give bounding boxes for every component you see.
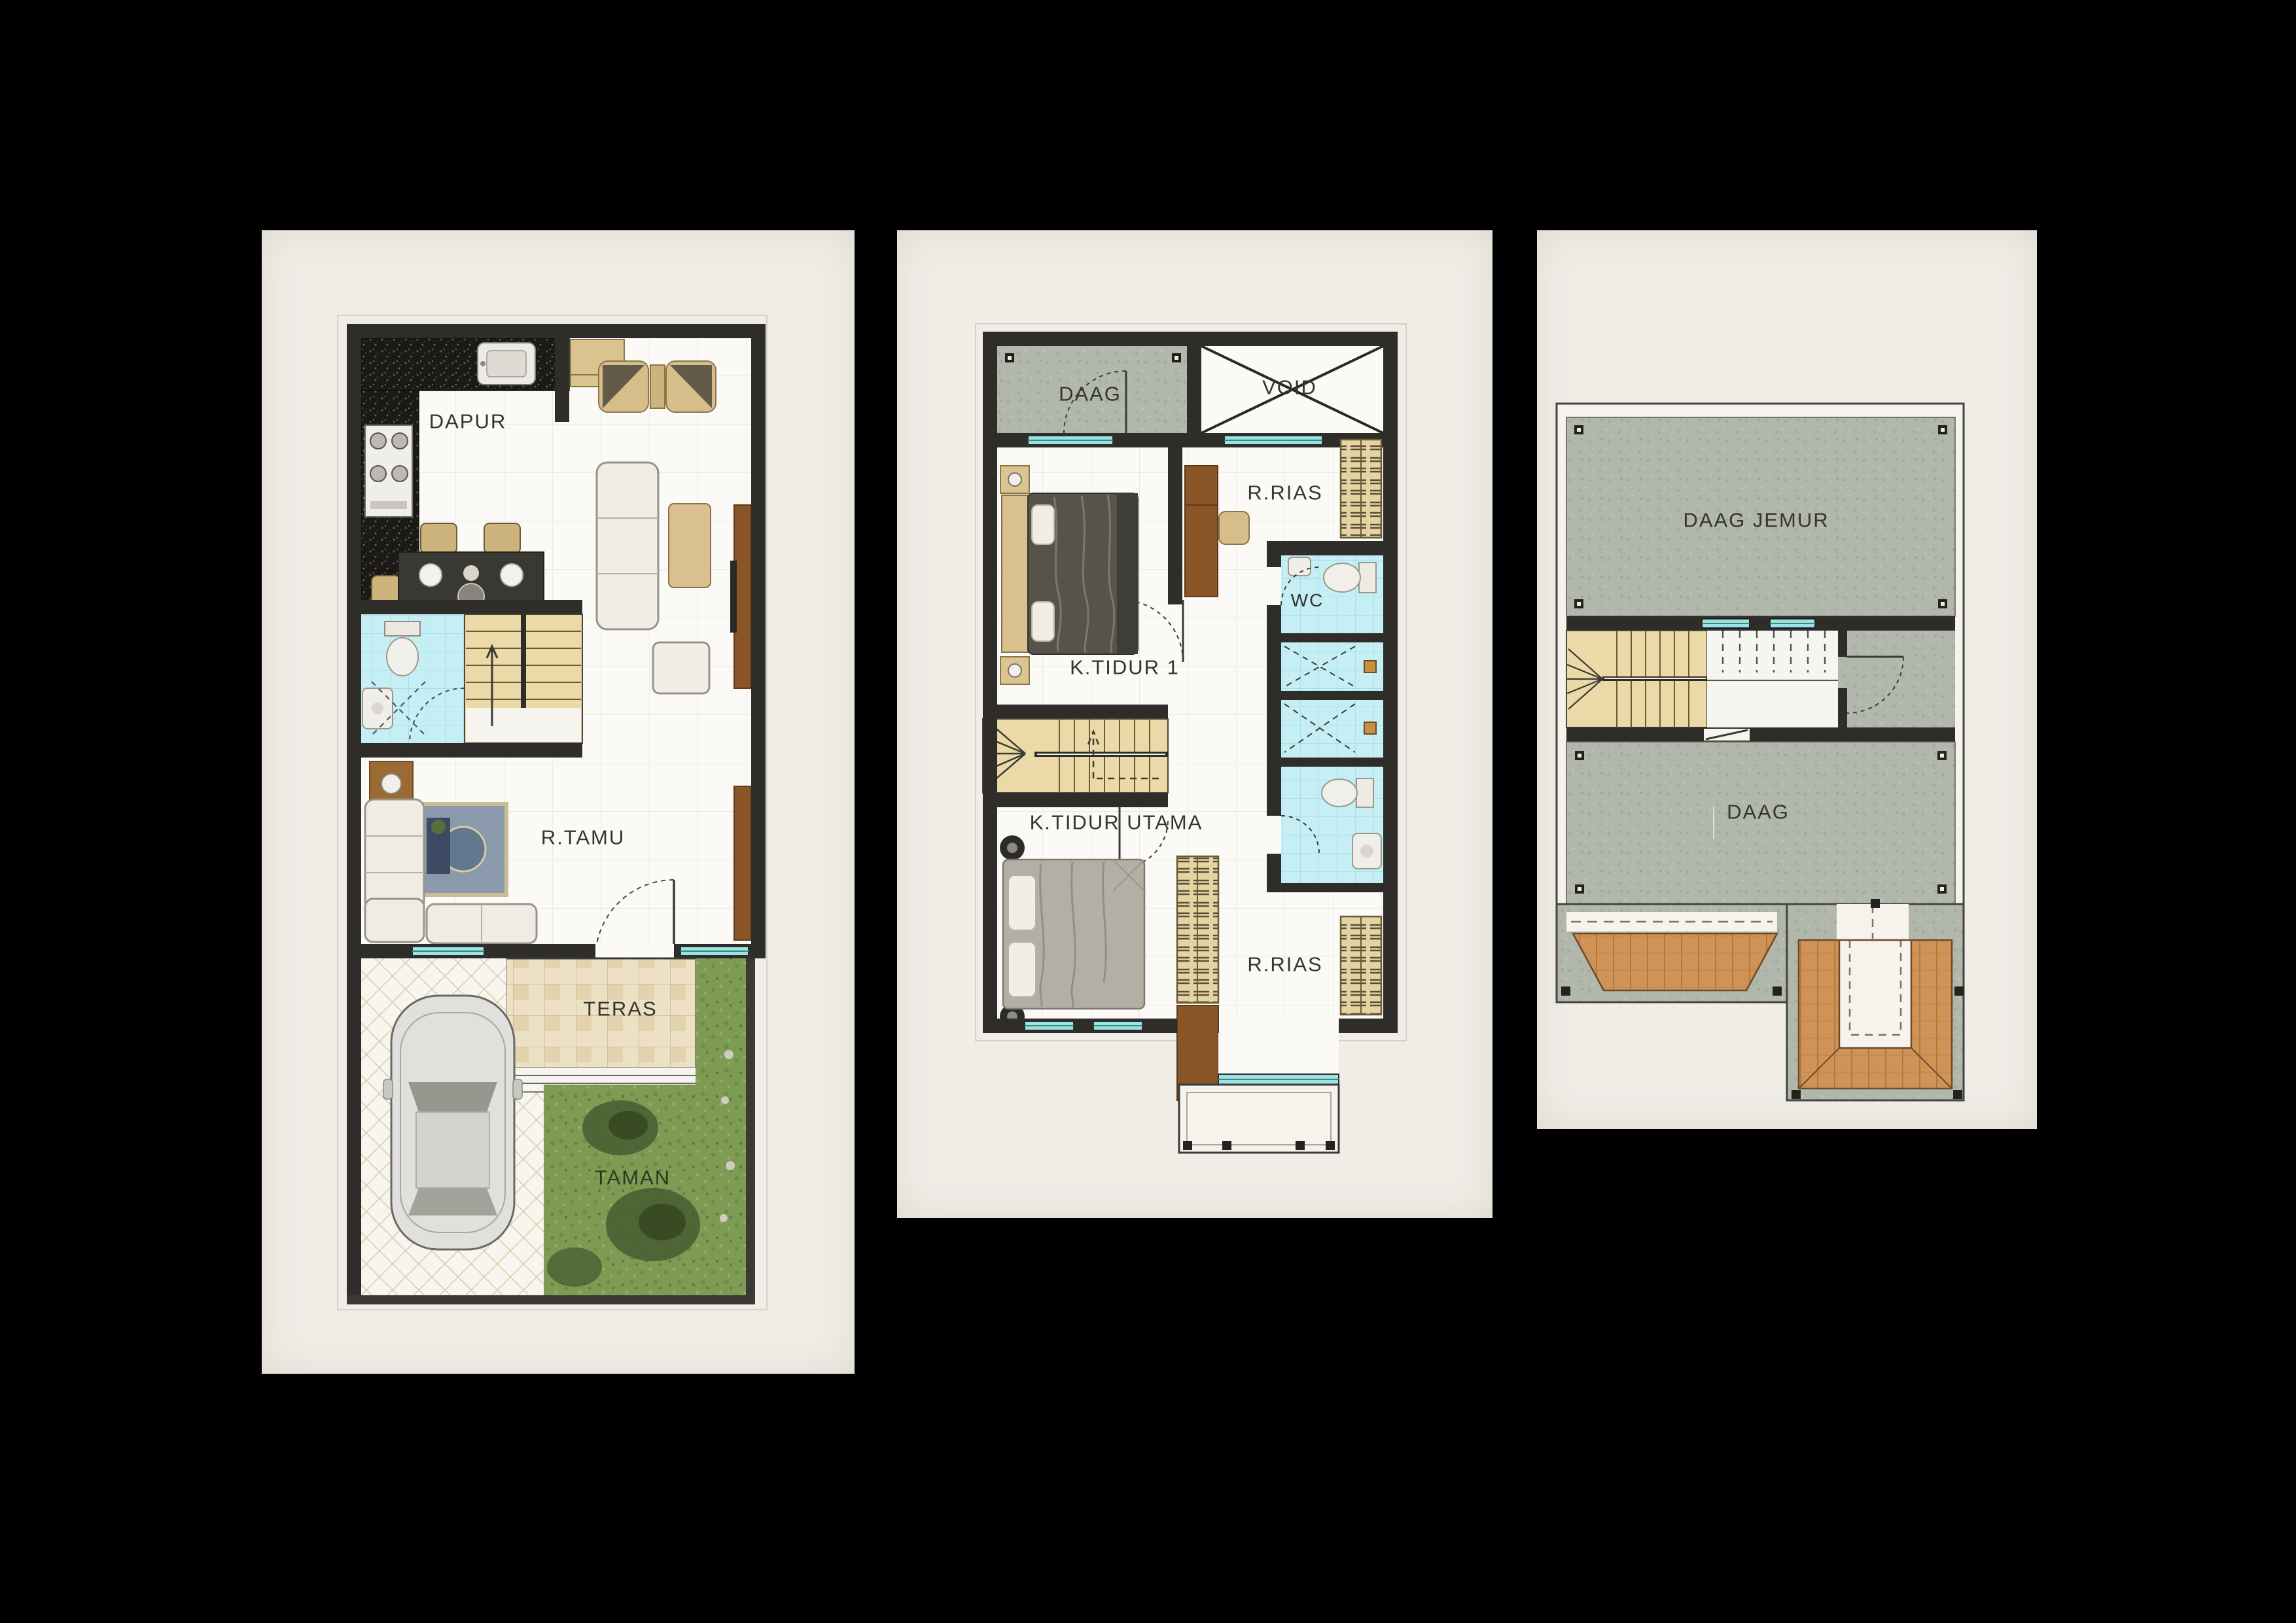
room-label-k-tidur-utama: K.TIDUR UTAMA <box>1030 812 1203 833</box>
roof-deck-left-wing <box>1557 904 1787 1002</box>
headboard <box>1002 495 1028 652</box>
panel-roof-plan: DAAG JEMUR DAAG <box>1537 230 2037 1129</box>
bath-column <box>1267 541 1383 892</box>
room-label-taman: TAMAN <box>595 1168 671 1188</box>
room-label-daag-jemur: DAAG JEMUR <box>1683 510 1829 531</box>
room-label-r-tamu: R.TAMU <box>541 828 626 848</box>
room-label-wc: WC <box>1291 591 1324 610</box>
room-label-daag-2f: DAAG <box>1059 384 1122 404</box>
stair-landing-roof <box>1707 631 1838 727</box>
master-bedroom <box>1000 835 1144 1029</box>
rear-window <box>408 1188 497 1215</box>
bath2-toilet <box>1322 779 1357 807</box>
console-cabinet <box>734 786 751 940</box>
wall-stairs-bottom <box>983 793 1168 807</box>
sofa-long <box>365 799 424 911</box>
room-label-r-rias-2: R.RIAS <box>1247 954 1322 975</box>
room-label-daag-roof: DAAG <box>1727 802 1790 822</box>
wall-bedroom1-bottom <box>983 705 1168 719</box>
ottoman <box>653 642 709 693</box>
wall-bedroom1-rias <box>1168 447 1182 604</box>
room-label-dapur: DAPUR <box>429 411 507 432</box>
bathroom <box>361 614 465 743</box>
stair-landing <box>466 708 581 742</box>
room-label-teras: TERAS <box>583 999 657 1019</box>
wall-daag-void <box>1187 332 1201 433</box>
coffee-table <box>669 504 711 587</box>
wall-stair-bottom <box>347 743 582 758</box>
roof-mid-wall <box>1566 616 1955 631</box>
car <box>383 996 522 1249</box>
wall-under-stairs <box>1566 727 1955 742</box>
wc-sink <box>1288 557 1311 576</box>
floorplan-sheet: DAPUR R.TAMU TERAS TAMAN <box>0 0 2296 1623</box>
windshield <box>408 1082 497 1112</box>
room-label-r-rias-1: R.RIAS <box>1247 483 1322 503</box>
second-floor-plan-drawing <box>897 230 1492 1218</box>
ground-floor-plan-drawing <box>262 230 855 1374</box>
stairs-roof <box>1566 631 1955 727</box>
panel-second-floor: DAAG VOID R.RIAS K.TIDUR 1 WC K.TIDUR UT… <box>897 230 1492 1218</box>
roof-plan-drawing <box>1537 230 2037 1129</box>
toilet <box>387 638 418 676</box>
desk <box>1185 466 1218 597</box>
stairs-ground <box>465 614 582 743</box>
bedroom-1 <box>1000 466 1138 684</box>
room-label-void: VOID <box>1262 377 1317 398</box>
room-label-k-tidur-1: K.TIDUR 1 <box>1070 657 1180 678</box>
wall-mid <box>347 600 582 614</box>
armchair-set <box>599 361 716 412</box>
roof-deck-right-wing <box>1787 904 1964 1100</box>
stove <box>365 425 412 517</box>
panel-ground-floor: DAPUR R.TAMU TERAS TAMAN <box>262 230 855 1374</box>
stairs-upper <box>983 719 1168 793</box>
desk-chair <box>1219 512 1249 544</box>
wall-stub-kitchen <box>555 324 569 422</box>
wc-toilet <box>1324 563 1360 592</box>
teras-terrace <box>501 958 701 1092</box>
